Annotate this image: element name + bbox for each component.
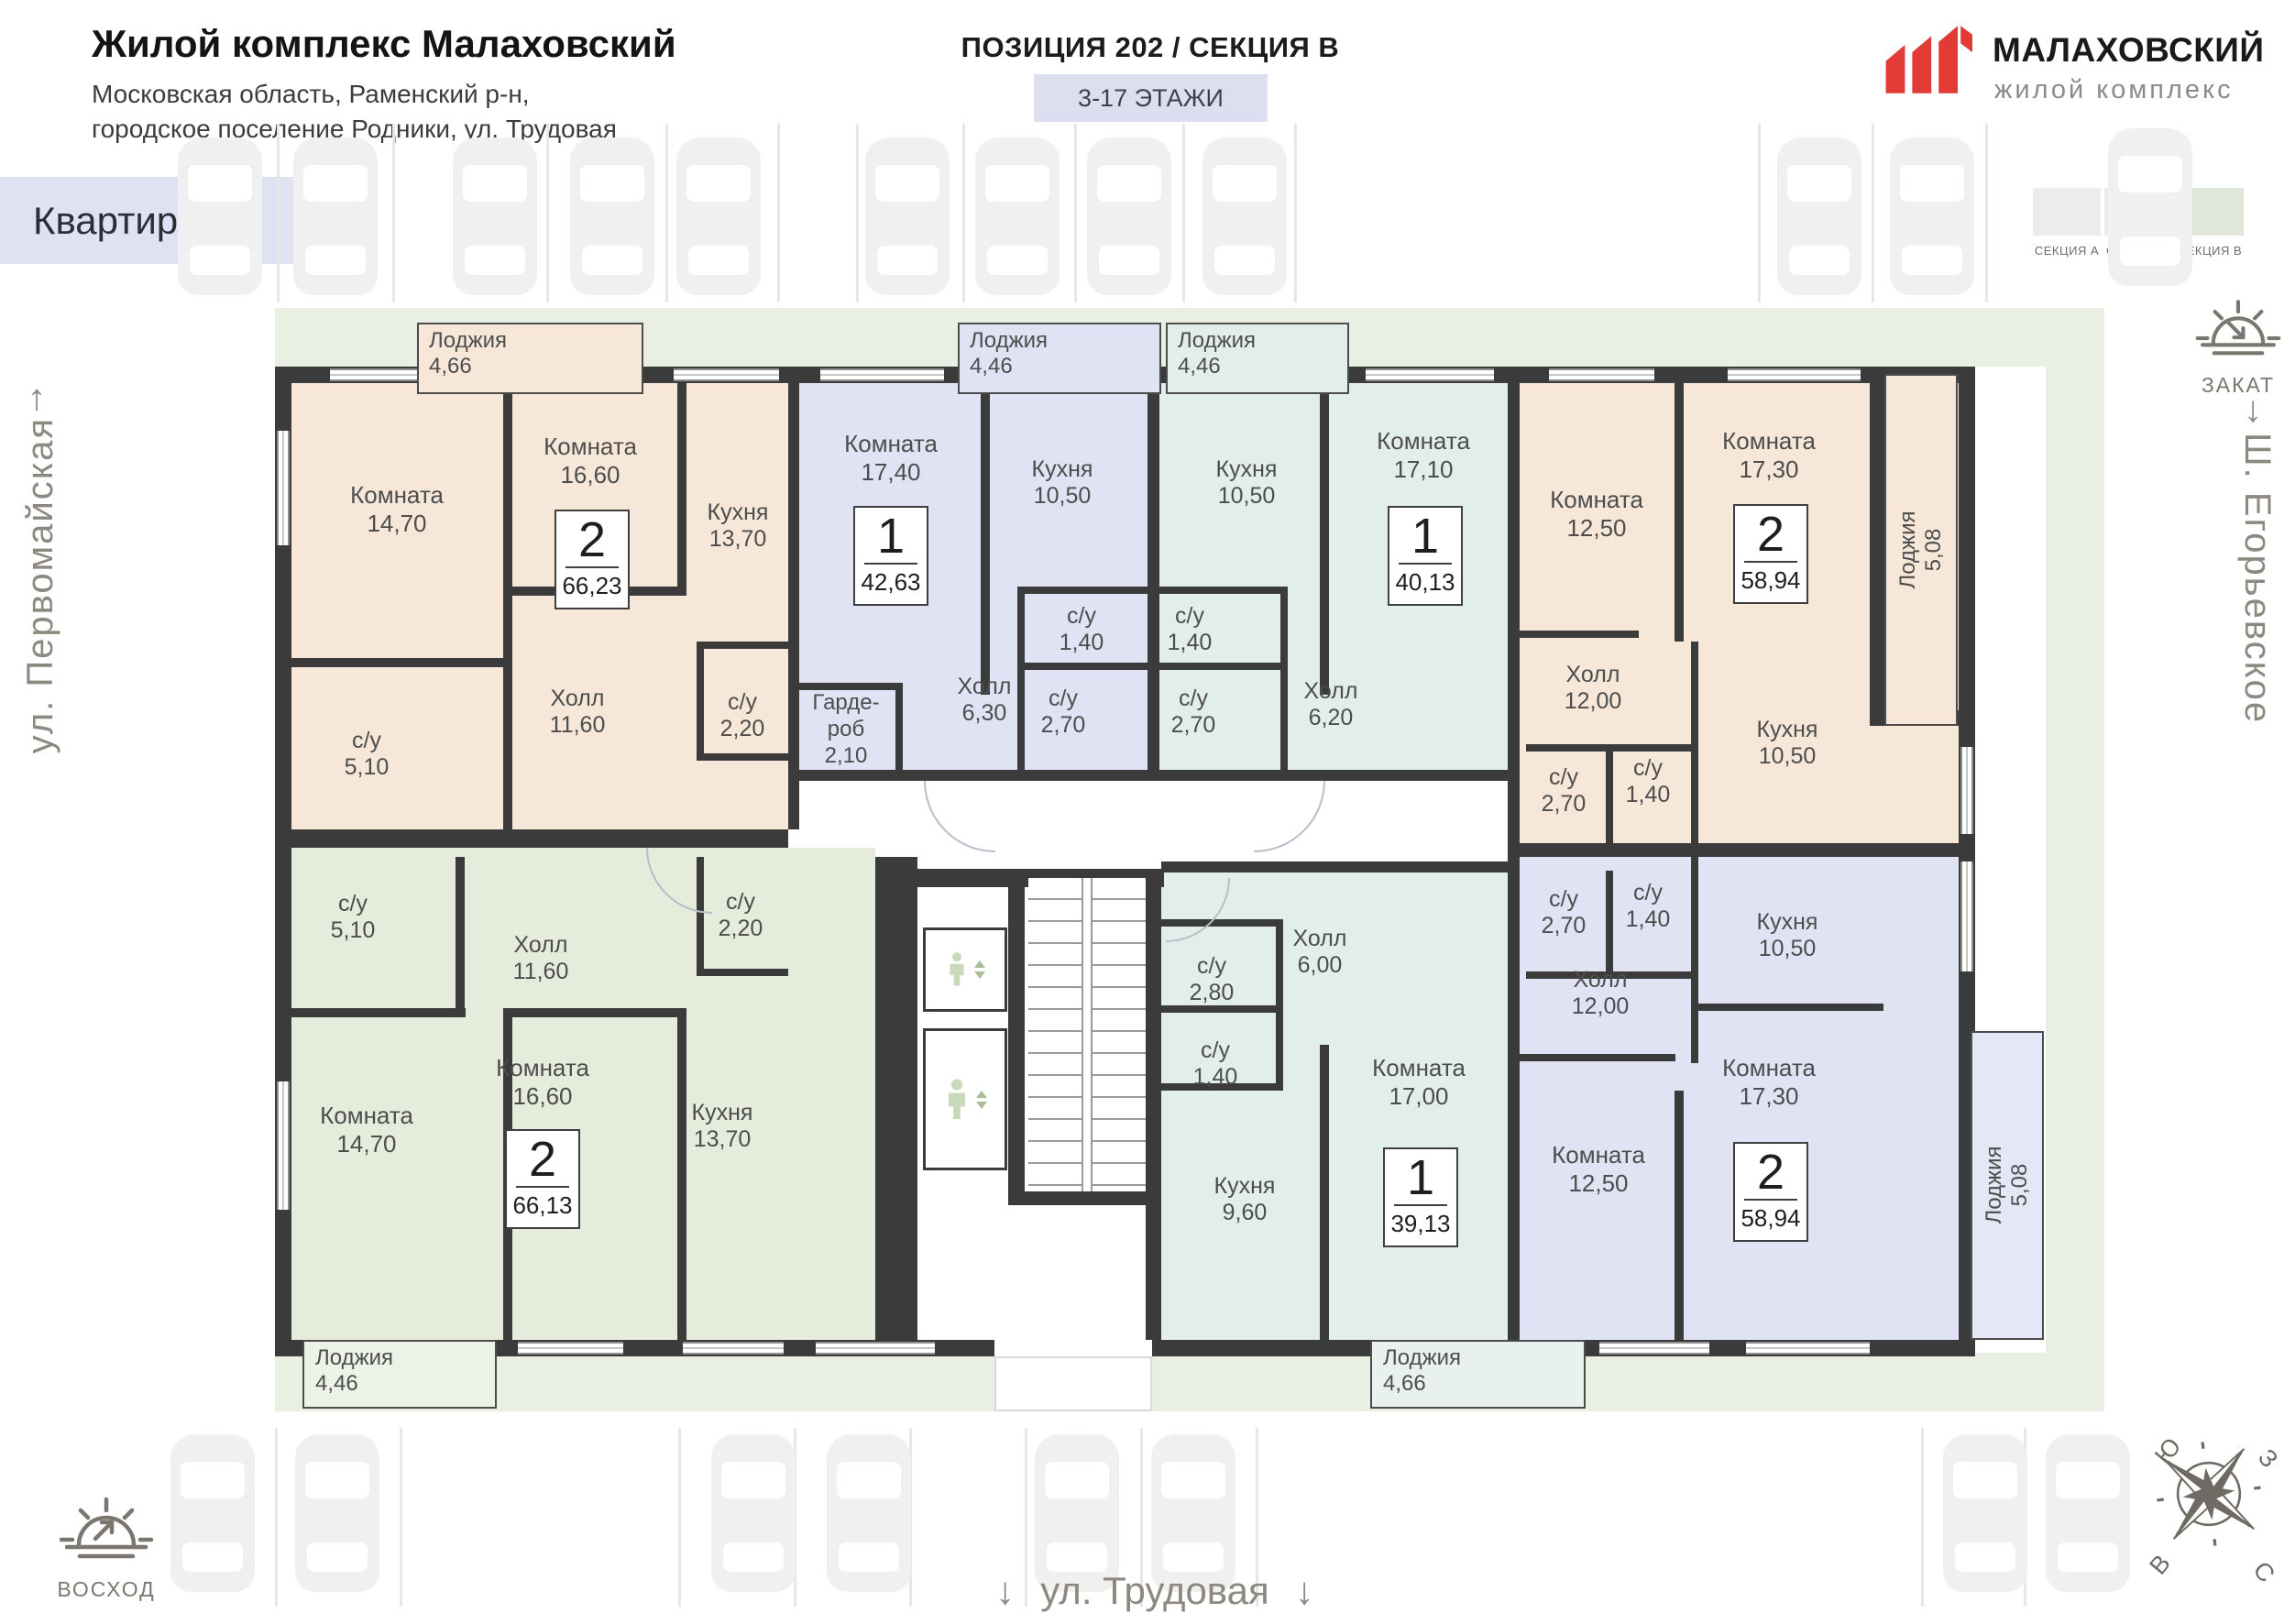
parking-divider: [777, 124, 780, 302]
loggia-label: Лоджия4,66: [429, 328, 507, 379]
car: [293, 137, 378, 295]
parking-divider: [1985, 124, 1988, 302]
room-label: Кухня13,70: [683, 499, 793, 553]
loggia-label: Лоджия4,66: [1383, 1345, 1461, 1397]
apartment-badge[interactable]: 266,23: [555, 510, 630, 609]
window: [277, 1081, 290, 1210]
car: [1890, 137, 1974, 295]
entrance-porch: [994, 1356, 1152, 1411]
elevator: [923, 927, 1007, 1012]
wall: [291, 658, 512, 667]
wall: [503, 383, 512, 658]
room-label: Комната14,70: [302, 1102, 431, 1158]
room-label: с/у1,40: [1593, 755, 1703, 808]
room-label: с/у1,40: [1027, 603, 1137, 656]
wall: [704, 753, 788, 761]
room-label: с/у1,40: [1593, 880, 1703, 933]
wall: [895, 683, 903, 770]
address-line1: Московская область, Раменский р-н,: [92, 77, 617, 112]
car: [453, 137, 537, 295]
entrance-opening: [994, 1340, 1152, 1356]
room-label: Комната12,50: [1532, 486, 1661, 543]
room-label: с/у2,20: [687, 689, 797, 742]
room-label: Кухня13,70: [667, 1100, 777, 1153]
car: [865, 137, 950, 295]
elevator-arrows-icon: [976, 1091, 987, 1109]
logo-subtitle: жилой комплекс: [1994, 75, 2234, 105]
wall: [291, 829, 788, 848]
room-label: с/у2,70: [1008, 686, 1118, 739]
wall: [1320, 1045, 1329, 1340]
wall: [1025, 663, 1147, 670]
room-label: Комната16,60: [478, 1054, 607, 1111]
car: [295, 1434, 379, 1592]
wall: [503, 658, 512, 829]
logo-icon: [1884, 18, 1980, 101]
car: [570, 137, 654, 295]
wall: [704, 642, 788, 649]
room-label: Кухня9,60: [1190, 1173, 1300, 1226]
wall: [1520, 843, 1959, 857]
elevator: [923, 1028, 1007, 1170]
elevator-arrows-icon: [974, 960, 985, 979]
loggia-label: Лоджия5,08: [1982, 1116, 2033, 1254]
car: [2108, 128, 2192, 286]
window: [816, 1342, 935, 1355]
wall: [677, 1008, 686, 1340]
sunrise-indicator: ВОСХОД: [33, 1492, 180, 1602]
door-arc: [1254, 781, 1325, 852]
room-label: Холл11,60: [486, 932, 596, 985]
room-label: с/у5,10: [312, 728, 422, 781]
room-label: Кухня10,50: [1007, 456, 1117, 510]
car: [676, 137, 761, 295]
parking-divider: [277, 124, 280, 302]
wall: [1675, 1091, 1684, 1340]
wall: [1159, 587, 1280, 594]
loggia-label: Лоджия4,46: [315, 1345, 393, 1397]
parking-divider: [1758, 124, 1761, 302]
staircase: [1028, 878, 1146, 1191]
wall: [1008, 1191, 1161, 1205]
logo-brand[interactable]: МАЛАХОВСКИЙ: [1993, 31, 2264, 70]
compass-icon: [2125, 1410, 2292, 1577]
apartment-badge[interactable]: 258,94: [1733, 504, 1808, 604]
window: [1366, 368, 1494, 381]
apartment-badge[interactable]: 266,13: [505, 1129, 580, 1229]
wall: [1320, 383, 1329, 695]
room-label: Холл12,00: [1538, 662, 1648, 715]
parking-divider: [546, 124, 549, 302]
window: [1960, 861, 1973, 971]
parking-divider: [1182, 124, 1185, 302]
room-label: Комната14,70: [333, 481, 461, 538]
compass-north-label: С: [2247, 1556, 2280, 1588]
parking-divider: [1921, 1428, 1924, 1607]
room-label: с/у1,40: [1135, 603, 1245, 656]
wall: [875, 857, 917, 1340]
room-label: Комната17,40: [827, 430, 955, 487]
wall: [512, 1008, 686, 1017]
apartment-badge[interactable]: 139,13: [1383, 1147, 1458, 1247]
wall: [981, 383, 990, 695]
window: [1549, 368, 1654, 381]
car: [2046, 1434, 2130, 1592]
wall: [1161, 1005, 1283, 1013]
page: Жилой комплекс Малаховский Московская об…: [0, 0, 2295, 1624]
room-label: Гарде-роб2,10: [804, 689, 888, 769]
apartment-badge[interactable]: 140,13: [1388, 506, 1463, 606]
loggia-label: Лоджия5,08: [1895, 481, 1947, 619]
room-label: Комната17,30: [1705, 427, 1833, 484]
room-label: Холл12,00: [1545, 967, 1655, 1020]
wall: [788, 383, 799, 829]
wall: [1508, 383, 1520, 1340]
car: [170, 1434, 255, 1592]
parking-divider: [275, 1428, 278, 1607]
window: [674, 368, 779, 381]
parking-divider: [392, 124, 395, 302]
parking-divider: [665, 124, 668, 302]
wall: [1008, 869, 1025, 1191]
street-left-label: ул. Первомайская: [20, 417, 61, 753]
address: Московская область, Раменский р-н, город…: [92, 77, 617, 147]
parking-divider: [400, 1428, 402, 1607]
wall: [1691, 1004, 1883, 1011]
wall: [1520, 631, 1639, 638]
room-label: с/у2,70: [1138, 686, 1248, 739]
position-title: ПОЗИЦИЯ 202 / СЕКЦИЯ В: [875, 31, 1425, 64]
wall: [794, 770, 1508, 781]
loggia-label: Лоджия4,46: [1178, 328, 1256, 379]
sunset-icon: [2191, 295, 2286, 365]
window: [1728, 368, 1861, 381]
room-label: Комната17,10: [1359, 427, 1488, 484]
parking-divider: [1074, 124, 1077, 302]
arrow-down-icon: ↓: [995, 1569, 1015, 1612]
legend-section-a[interactable]: [2033, 188, 2101, 236]
loggia-label: Лоджия4,46: [970, 328, 1048, 379]
wall: [1159, 663, 1280, 670]
window: [518, 1342, 623, 1355]
apartment-badge[interactable]: 142,63: [853, 506, 928, 606]
room-label: Кухня10,50: [1732, 909, 1842, 962]
parking-divider: [962, 124, 965, 302]
window: [1746, 1342, 1870, 1355]
parking-divider: [1872, 124, 1874, 302]
room-label: Комната12,50: [1534, 1141, 1663, 1198]
arrow-down-icon: ↓: [1295, 1569, 1314, 1612]
car: [975, 137, 1060, 295]
room-label: Кухня10,50: [1191, 456, 1301, 510]
wall: [1691, 642, 1698, 843]
window: [1960, 747, 1973, 834]
wall: [456, 857, 465, 1008]
wall: [1161, 861, 1508, 872]
wall: [704, 969, 788, 976]
wall: [1025, 587, 1147, 594]
car: [1777, 137, 1861, 295]
floors-badge: 3-17 ЭТАЖИ: [1034, 74, 1268, 122]
room-label: с/у1,40: [1160, 1037, 1270, 1091]
arrow-up-icon: ↑: [27, 378, 46, 419]
street-right-label: Ш. Егорьевское: [2236, 433, 2278, 724]
sunrise-icon: [53, 1492, 159, 1569]
wall: [1146, 869, 1161, 1340]
room-label: с/у2,80: [1157, 953, 1267, 1006]
room-label: Комната16,60: [526, 433, 654, 489]
parking-divider: [1294, 124, 1297, 302]
lawn-strip: [2046, 308, 2104, 1353]
elevator-person-icon: [943, 1078, 971, 1122]
sunset-indicator: ЗАКАТ: [2178, 295, 2295, 398]
parking-divider: [678, 1428, 681, 1607]
window: [683, 1342, 784, 1355]
page-title: Жилой комплекс Малаховский: [92, 22, 676, 66]
room-label: Холл6,00: [1265, 926, 1375, 979]
wall: [1520, 1054, 1675, 1061]
lawn-strip: [275, 1353, 2104, 1411]
wall: [1675, 383, 1684, 642]
wall: [291, 1008, 466, 1017]
window: [820, 368, 944, 381]
car: [178, 137, 262, 295]
room-label: Кухня10,50: [1732, 717, 1842, 770]
compass-east-label: В: [2144, 1550, 2176, 1581]
window: [277, 431, 290, 545]
room-label: Холл11,60: [522, 686, 632, 739]
room-label: Холл6,20: [1276, 678, 1386, 731]
elevator-person-icon: [945, 951, 969, 988]
room-label: с/у5,10: [298, 891, 408, 944]
door-arc: [924, 781, 995, 852]
car: [1087, 137, 1171, 295]
room-label: Комната17,00: [1355, 1054, 1483, 1111]
street-bottom-label: ↓ул. Трудовая↓: [880, 1569, 1430, 1613]
room-label: Комната17,30: [1705, 1054, 1833, 1111]
wall: [677, 383, 686, 587]
parking-divider: [856, 124, 859, 302]
window: [1599, 1342, 1709, 1355]
car: [711, 1434, 796, 1592]
car: [1943, 1434, 2027, 1592]
car: [1202, 137, 1287, 295]
apartment-badge[interactable]: 258,94: [1733, 1142, 1808, 1242]
